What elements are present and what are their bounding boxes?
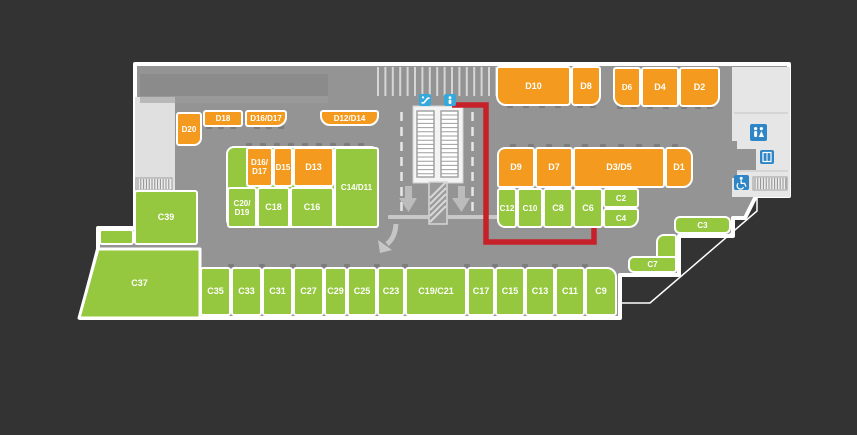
map-unit-c17[interactable]: C17 — [467, 267, 495, 316]
map-unit-c4[interactable]: C4 — [603, 208, 639, 228]
unit-label: D18 — [216, 114, 231, 123]
unit-label: D10 — [525, 82, 542, 91]
unit-label: C27 — [300, 287, 317, 296]
unit-label: C20/ D19 — [234, 199, 251, 217]
unit-label: D2 — [694, 83, 706, 92]
unit-label: C12 — [500, 204, 515, 213]
lift-icon — [444, 93, 456, 111]
unit-label: C7 — [647, 260, 657, 269]
unit-label: D16/ D17 — [251, 158, 268, 176]
unit-label: D6 — [622, 83, 632, 92]
unit-label: C6 — [582, 204, 594, 213]
map-unit[interactable] — [99, 229, 134, 245]
map-unit-c16[interactable]: C16 — [290, 187, 334, 228]
map-unit-c3[interactable]: C3 — [674, 216, 731, 234]
map-unit-d12-d14[interactable]: D12/D14 — [320, 110, 379, 126]
unit-label: C15 — [502, 287, 519, 296]
map-unit-d13[interactable]: D13 — [293, 147, 334, 187]
unit-label: D15 — [276, 163, 291, 172]
map-unit-c25[interactable]: C25 — [347, 267, 377, 316]
map-unit-d15[interactable]: D15 — [273, 147, 293, 187]
unit-label: C37 — [131, 279, 148, 288]
map-unit-c23[interactable]: C23 — [377, 267, 405, 316]
map-unit-c15[interactable]: C15 — [495, 267, 525, 316]
map-unit-c10[interactable]: C10 — [517, 188, 543, 228]
unit-label: C14/D11 — [341, 183, 372, 192]
unit-label: D20 — [182, 125, 197, 134]
unit-label: D9 — [510, 163, 522, 172]
map-unit-d4[interactable]: D4 — [641, 67, 679, 107]
map-unit-c29[interactable]: C29 — [324, 267, 347, 316]
unit-label: D13 — [305, 163, 322, 172]
map-unit-c11[interactable]: C11 — [555, 267, 585, 316]
unit-label: D1 — [673, 163, 685, 172]
map-unit-d8[interactable]: D8 — [571, 66, 601, 106]
map-unit-d3-d5[interactable]: D3/D5 — [573, 147, 665, 188]
map-unit-d18[interactable]: D18 — [203, 110, 243, 127]
map-unit-c19-c21[interactable]: C19/C21 — [405, 267, 467, 316]
unit-label: C39 — [158, 213, 175, 222]
map-unit-c27[interactable]: C27 — [293, 267, 324, 316]
unit-label: C16 — [304, 203, 321, 212]
unit-label: C11 — [562, 287, 578, 296]
map-unit-d1[interactable]: D1 — [665, 147, 693, 188]
unit-label: D3/D5 — [606, 163, 632, 172]
unit-label: C4 — [616, 214, 626, 223]
map-unit-c35[interactable]: C35 — [200, 267, 231, 316]
map-unit-c12[interactable]: C12 — [497, 188, 517, 228]
unit-label: C23 — [383, 287, 400, 296]
unit-label: C9 — [595, 287, 607, 296]
map-unit-c7[interactable]: C7 — [628, 256, 677, 273]
unit-label: C31 — [269, 287, 286, 296]
units-layer: D10D8D6D4D2D20D18D16/D17D12/D14D16/ D17D… — [0, 0, 857, 435]
mall-floor-map-screen: { "map": { "title": "shopping-centre-par… — [0, 0, 857, 435]
unit-label: C8 — [552, 204, 564, 213]
map-unit-c20-d19[interactable]: C20/ D19 — [227, 187, 257, 228]
unit-label: C3 — [697, 221, 707, 230]
unit-label: D12/D14 — [334, 114, 366, 123]
unit-label: C13 — [532, 287, 549, 296]
map-unit-d7[interactable]: D7 — [535, 147, 573, 188]
map-unit-d2[interactable]: D2 — [679, 67, 720, 107]
map-unit-c18[interactable]: C18 — [257, 187, 290, 228]
map-unit-d10[interactable]: D10 — [496, 66, 571, 106]
map-unit-d9[interactable]: D9 — [497, 147, 535, 188]
unit-label: C35 — [207, 287, 224, 296]
accessible-icon — [734, 175, 749, 195]
unit-label: D16/D17 — [250, 114, 282, 123]
map-unit-d16-d17[interactable]: D16/D17 — [245, 110, 287, 127]
unit-label: C17 — [473, 287, 490, 296]
map-unit-c9[interactable]: C9 — [585, 267, 617, 316]
unit-label: C19/C21 — [418, 287, 454, 296]
map-unit-c8[interactable]: C8 — [543, 188, 573, 228]
unit-label: C33 — [238, 287, 255, 296]
elevator-icon — [760, 150, 774, 169]
unit-label: C18 — [265, 203, 282, 212]
unit-label: D8 — [580, 82, 592, 91]
map-unit-d6[interactable]: D6 — [613, 67, 641, 107]
unit-label: C25 — [354, 287, 371, 296]
map-unit-d20[interactable]: D20 — [176, 112, 202, 146]
unit-label: C2 — [616, 194, 626, 203]
map-unit-c37[interactable]: C37 — [79, 248, 200, 318]
escalator-icon — [419, 93, 431, 111]
unit-label: C10 — [523, 204, 538, 213]
map-unit-c31[interactable]: C31 — [262, 267, 293, 316]
unit-label: D4 — [654, 83, 666, 92]
toilets-icon — [750, 124, 767, 146]
map-unit-c33[interactable]: C33 — [231, 267, 262, 316]
unit-label: D7 — [548, 163, 560, 172]
map-unit-c14-d11[interactable]: C14/D11 — [334, 147, 379, 228]
map-unit-c39[interactable]: C39 — [134, 190, 198, 245]
map-unit-c6[interactable]: C6 — [573, 188, 603, 228]
map-unit-c13[interactable]: C13 — [525, 267, 555, 316]
map-unit-d16-d17[interactable]: D16/ D17 — [246, 147, 273, 187]
map-unit-c2[interactable]: C2 — [603, 188, 639, 208]
unit-label: C29 — [327, 287, 344, 296]
